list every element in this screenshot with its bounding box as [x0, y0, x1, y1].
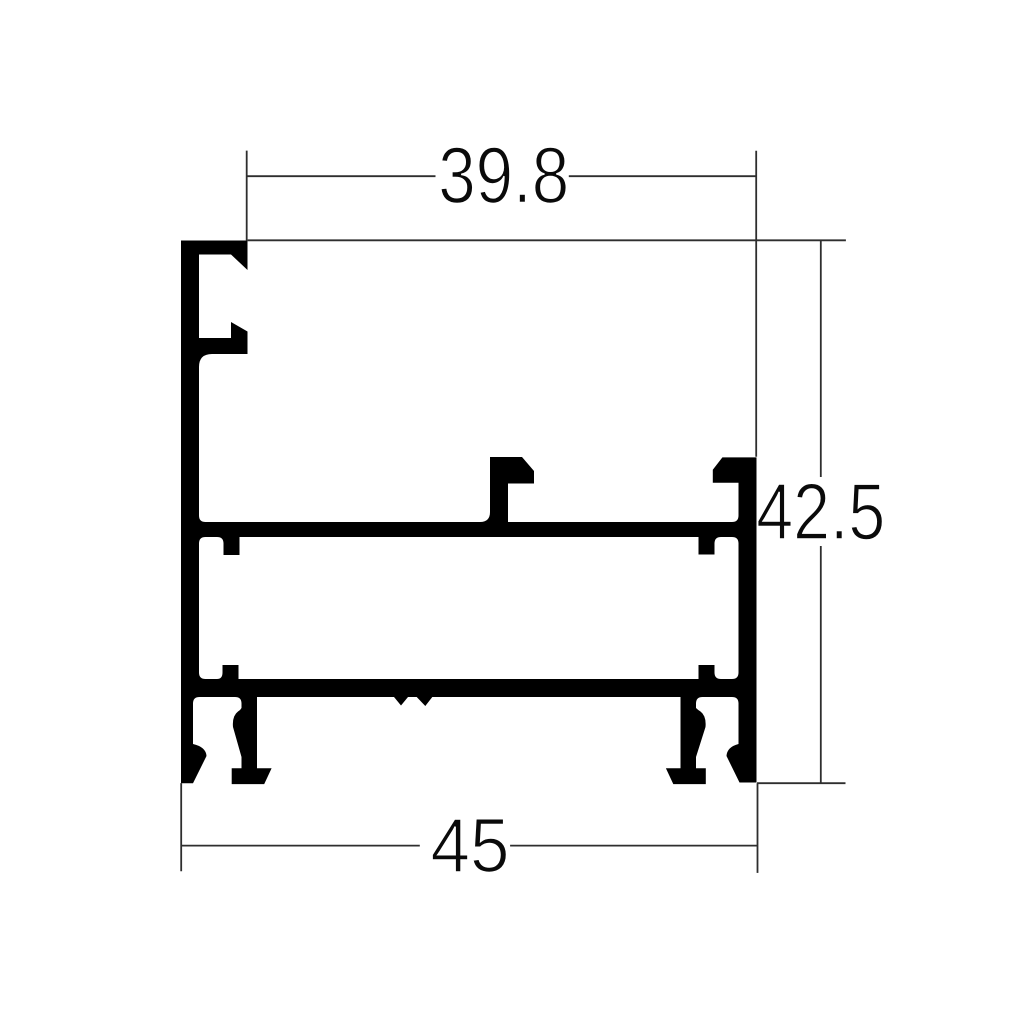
svg-text:45: 45 [431, 803, 510, 889]
svg-text:39.8: 39.8 [438, 131, 569, 220]
svg-text:42.5: 42.5 [756, 467, 885, 556]
